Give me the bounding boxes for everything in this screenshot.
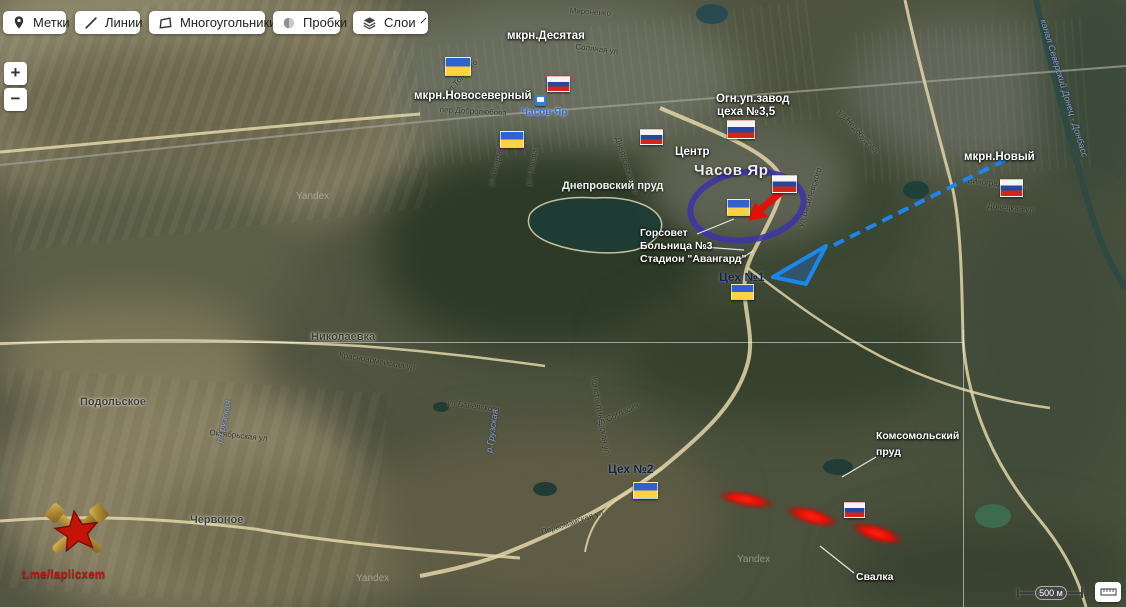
layers-button[interactable]: Слои [353, 11, 428, 34]
lines-button-label: Линии [105, 15, 143, 30]
scalebar-label: 500 м [1035, 586, 1067, 600]
settlement-label: Подольское [80, 396, 146, 408]
layers-icon [362, 16, 377, 30]
annotation-label: Огн.уп.завод [716, 93, 789, 105]
ua-flag-marker[interactable] [727, 199, 750, 216]
ru-flag-marker[interactable] [547, 76, 570, 92]
channel-logo [30, 496, 125, 571]
annotation-label: Горсовет [640, 227, 688, 239]
city-label: Часов Яр [694, 162, 769, 179]
ua-flag-marker[interactable] [731, 284, 754, 300]
marks-button-label: Метки [33, 15, 70, 30]
traffic-button[interactable]: Пробки [273, 11, 340, 34]
leader-line [697, 219, 734, 234]
zoom-in-button[interactable]: + [4, 62, 27, 85]
ua-flag-marker[interactable] [445, 57, 471, 76]
polygons-button[interactable]: Многоугольники [149, 11, 265, 34]
leader-line [842, 457, 876, 477]
ruler-button[interactable] [1095, 582, 1121, 602]
line-icon [84, 16, 98, 30]
marks-button[interactable]: Метки [3, 11, 66, 34]
traffic-icon [282, 16, 296, 30]
station-label: Часов Яр [521, 107, 567, 118]
zoom-out-button[interactable]: − [4, 88, 27, 111]
annotation-label: цеха №3,5 [717, 106, 775, 118]
annotation-label: Стадион "Авангард" [640, 253, 746, 265]
annotation-label: мкрн.Десятая [507, 30, 585, 42]
water-label: Днепровский пруд [562, 180, 663, 192]
scalebar-tick [1017, 588, 1019, 598]
ua-flag-marker[interactable] [500, 131, 524, 148]
scalebar-tick [1081, 588, 1083, 598]
ua-flag-marker[interactable] [633, 482, 658, 499]
annotation-label: Цех №2 [608, 462, 654, 476]
annotation-label: Комсомольский [876, 430, 959, 442]
chevron-down-icon [420, 18, 426, 24]
traffic-button-label: Пробки [303, 15, 347, 30]
polygons-button-label: Многоугольники [180, 15, 276, 30]
layers-button-label: Слои [384, 15, 416, 30]
ru-flag-marker[interactable] [727, 120, 755, 139]
annotation-label: Цех №1 [719, 270, 765, 284]
channel-watermark-text: t.me/laplicxem [22, 569, 105, 581]
annotation-label: Центр [675, 146, 710, 158]
blue-arrow-head [773, 246, 826, 284]
blue-arrow-line [830, 160, 1005, 247]
ru-flag-marker[interactable] [772, 175, 797, 193]
annotation-label: пруд [876, 446, 901, 458]
pin-icon [12, 15, 26, 30]
settlement-label: Николаевка [311, 331, 375, 343]
map-canvas[interactable]: Часов ЯрНиколаевкаПодольскоеЧервоноеДнеп… [0, 0, 1126, 607]
annotation-label: Больница №3 [640, 240, 713, 252]
station-icon [535, 95, 546, 106]
annotation-label: мкрн.Новосеверный [414, 90, 532, 102]
ru-flag-marker[interactable] [640, 129, 663, 145]
leader-line [820, 546, 854, 573]
ru-flag-marker[interactable] [844, 502, 865, 518]
ru-flag-marker[interactable] [1000, 179, 1023, 197]
annotation-label: мкрн.Новый [964, 151, 1035, 163]
lines-button[interactable]: Линии [75, 11, 140, 34]
settlement-label: Червоное [190, 514, 243, 526]
polygon-icon [158, 16, 173, 30]
annotation-label: Свалка [856, 571, 894, 583]
ruler-icon [1100, 587, 1117, 597]
